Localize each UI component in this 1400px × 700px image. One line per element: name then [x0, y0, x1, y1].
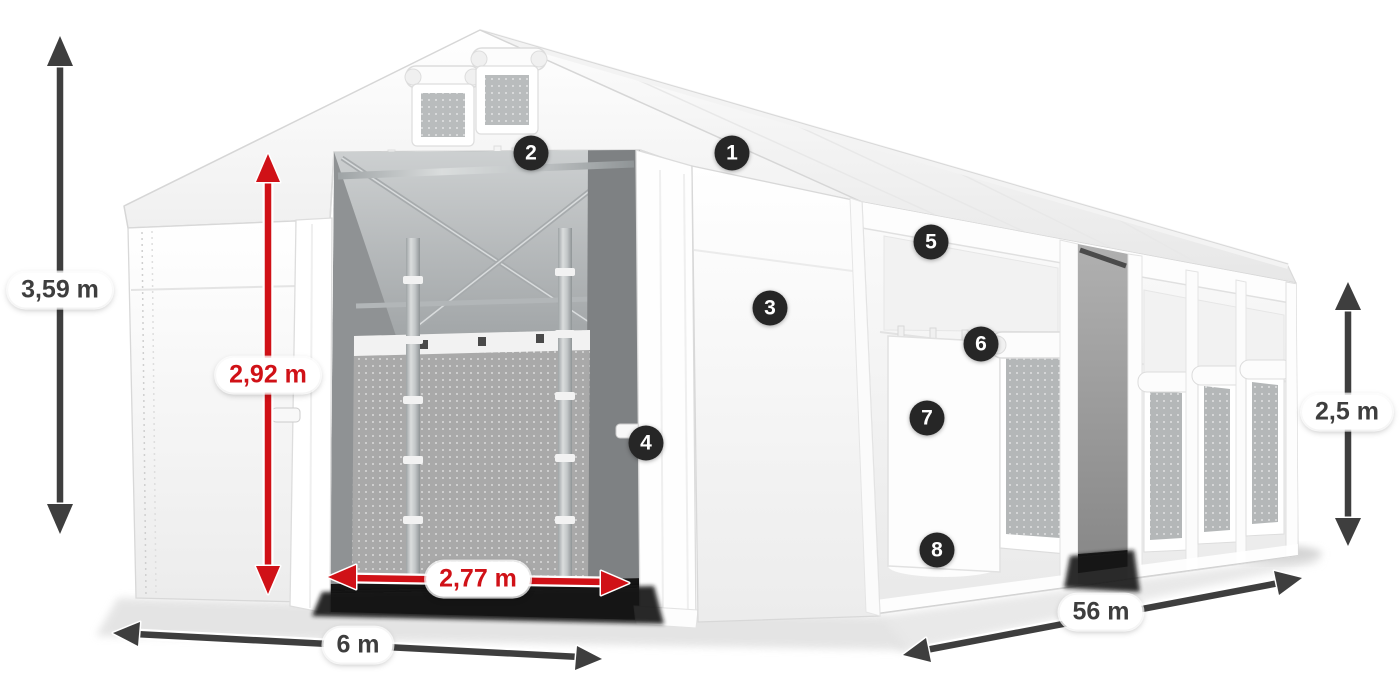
entrance-interior — [330, 150, 648, 620]
side-end-edge — [1286, 282, 1298, 558]
callout-hotspot-5[interactable]: 5 — [914, 225, 949, 260]
dimension-label-gable-width: 6 m — [323, 628, 392, 663]
side-strap — [1060, 240, 1078, 582]
door-strap-handle — [272, 408, 300, 422]
tent-illustration — [0, 0, 1400, 700]
side-doorway-floor-shadow — [1064, 550, 1140, 592]
dimension-label-side-wall-height: 2,5 m — [1302, 395, 1392, 430]
tent-dimension-diagram: 3,59 m 2,92 m 2,77 m 6 m 56 m 2,5 m 1 2 … — [0, 0, 1400, 700]
side-open-doorway — [1078, 244, 1128, 586]
dimension-label-entrance-height: 2,92 m — [216, 358, 320, 393]
gable-vent-right — [476, 66, 538, 134]
callout-hotspot-7[interactable]: 7 — [910, 401, 945, 436]
interior-pole — [555, 228, 575, 600]
dimension-label-length: 56 m — [1060, 595, 1143, 630]
side-strap — [1236, 280, 1246, 568]
side-strap — [1186, 270, 1198, 576]
callout-hotspot-3[interactable]: 3 — [753, 291, 788, 326]
dimension-label-entrance-width: 2,77 m — [426, 562, 530, 597]
side-mesh-window-1 — [1000, 344, 1066, 554]
interior-mesh-wall — [352, 330, 590, 588]
callout-hotspot-2[interactable]: 2 — [514, 136, 549, 171]
side-post — [1128, 254, 1142, 586]
callout-hotspot-1[interactable]: 1 — [715, 136, 750, 171]
side-mesh-window-4 — [1240, 308, 1292, 536]
callout-hotspot-4[interactable]: 4 — [629, 426, 664, 461]
dimension-label-total-height: 3,59 m — [8, 273, 112, 308]
callout-hotspot-8[interactable]: 8 — [920, 533, 955, 568]
callout-hotspot-6[interactable]: 6 — [964, 327, 999, 362]
tent-right-wall — [692, 166, 880, 622]
interior-pole — [403, 238, 423, 594]
gable-vent-left — [412, 84, 474, 146]
